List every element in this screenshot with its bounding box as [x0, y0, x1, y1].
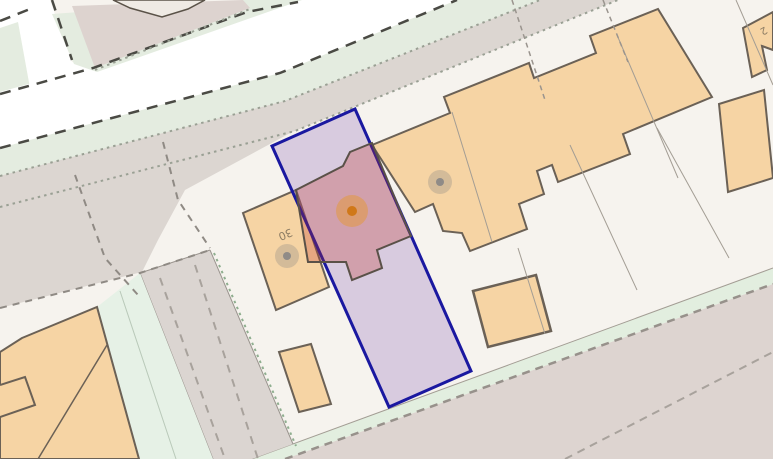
building-30-marker[interactable] — [275, 244, 299, 268]
map-svg: 30 2 — [0, 0, 773, 459]
orange-dot-icon — [347, 206, 357, 216]
map-canvas[interactable]: 30 2 — [0, 0, 773, 459]
gray-dot-icon — [436, 178, 444, 186]
building-far-right — [719, 90, 773, 192]
neighbor-building-marker[interactable] — [428, 170, 452, 194]
gray-dot-icon — [283, 252, 291, 260]
selected-building-marker[interactable] — [336, 195, 368, 227]
